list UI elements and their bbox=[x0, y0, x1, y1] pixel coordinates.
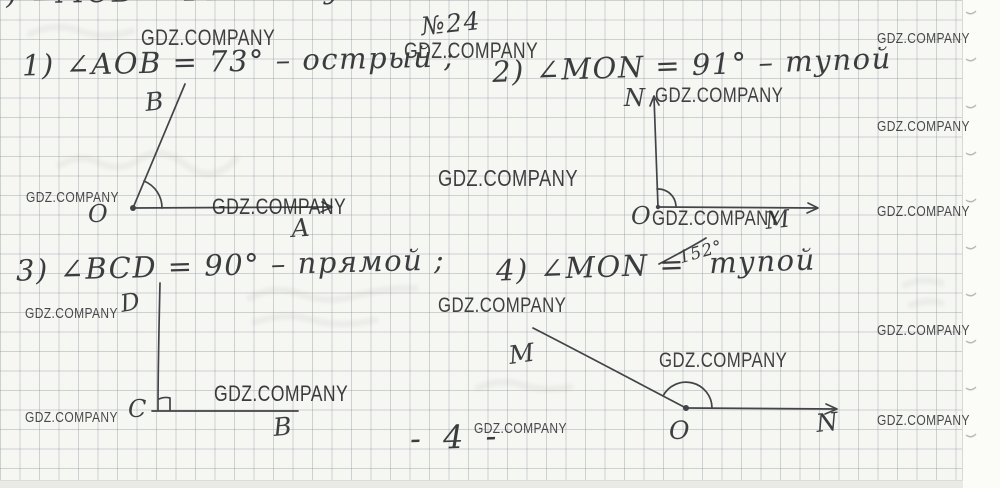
pencil-stroke bbox=[654, 97, 658, 207]
watermark-gdz-company: GDZ.COMPANY bbox=[659, 350, 787, 371]
pencil-stroke bbox=[686, 408, 836, 409]
watermark-gdz-company: GDZ.COMPANY bbox=[214, 383, 348, 405]
watermark-gdz-company: GDZ.COMPANY bbox=[438, 295, 566, 316]
solution-line-4-suffix: тупой bbox=[708, 242, 816, 280]
watermark-gdz-company: GDZ.COMPANY bbox=[25, 306, 118, 321]
point-label-b: B bbox=[271, 411, 293, 442]
edge-tick bbox=[966, 58, 976, 61]
vertex-dot bbox=[683, 405, 689, 411]
point-label-d: D bbox=[117, 287, 142, 318]
watermark-gdz-company: GDZ.COMPANY bbox=[438, 167, 578, 190]
watermark-gdz-company: GDZ.COMPANY bbox=[877, 204, 970, 219]
watermark-gdz-company: GDZ.COMPANY bbox=[212, 196, 346, 218]
edge-tick bbox=[966, 246, 976, 249]
angle-bcd-diagram: DCB bbox=[117, 283, 298, 442]
ghost-squiggle bbox=[255, 316, 375, 324]
solution-line-4-prefix: 4) ∠MON = bbox=[495, 247, 685, 288]
point-label-m: M bbox=[506, 337, 538, 370]
problem-number: №24 bbox=[420, 7, 483, 41]
watermark-gdz-company: GDZ.COMPANY bbox=[25, 410, 118, 425]
point-label-o: O bbox=[669, 416, 690, 445]
ghost-squiggle bbox=[905, 280, 941, 305]
point-label-c: C bbox=[128, 395, 146, 423]
watermark-gdz-company: GDZ.COMPANY bbox=[877, 323, 970, 338]
edge-tick bbox=[966, 387, 976, 390]
edge-tick bbox=[966, 199, 976, 202]
watermark-gdz-company: GDZ.COMPANY bbox=[652, 208, 780, 229]
edge-tick bbox=[966, 434, 976, 437]
pencil-stroke bbox=[657, 189, 676, 206]
point-label-o: O bbox=[631, 202, 651, 230]
vertex-dot bbox=[130, 205, 136, 211]
torn-edge-ticks bbox=[966, 11, 976, 437]
edge-tick bbox=[966, 152, 976, 155]
point-label-n: N bbox=[623, 84, 646, 112]
point-label-b: B bbox=[143, 86, 165, 117]
edge-tick bbox=[966, 293, 976, 296]
edge-tick bbox=[966, 11, 976, 14]
notebook-page: BOANOMDCBMON GDZ.COMPANYGDZ.COMPANYGDZ.C… bbox=[0, 0, 1000, 488]
point-label-n: N bbox=[814, 407, 841, 438]
page-number: - 4 - bbox=[409, 418, 502, 456]
pencil-stroke bbox=[159, 397, 170, 410]
ghost-squiggle bbox=[478, 382, 570, 389]
watermark-gdz-company: GDZ.COMPANY bbox=[877, 119, 970, 134]
ghost-squiggle bbox=[250, 288, 415, 300]
watermark-gdz-company: GDZ.COMPANY bbox=[26, 190, 119, 205]
pencil-stroke bbox=[158, 283, 160, 410]
watermark-gdz-company: GDZ.COMPANY bbox=[877, 413, 970, 428]
pencil-stroke bbox=[144, 181, 162, 208]
edge-tick bbox=[966, 105, 976, 108]
watermark-gdz-company: GDZ.COMPANY bbox=[655, 85, 783, 106]
pencil-stroke bbox=[663, 382, 712, 408]
ghost-squiggle bbox=[30, 27, 132, 35]
edge-tick bbox=[966, 340, 976, 343]
